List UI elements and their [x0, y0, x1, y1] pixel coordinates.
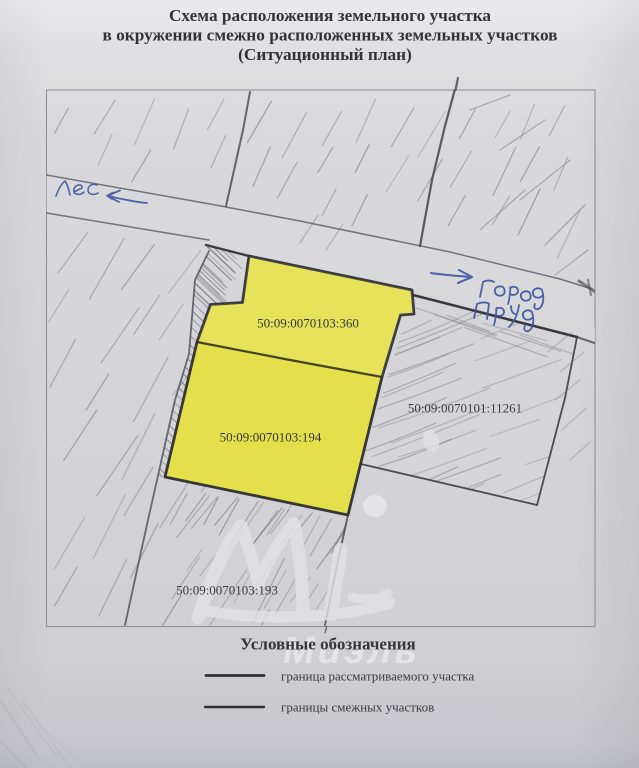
svg-text:50:09:0070101:11261: 50:09:0070101:11261 [408, 401, 522, 416]
svg-text:в окружении смежно расположенн: в окружении смежно расположенных земельн… [102, 26, 557, 45]
svg-text:50:09:0070103:360: 50:09:0070103:360 [257, 316, 359, 331]
svg-text:Условные обозначения: Условные обозначения [240, 635, 416, 654]
svg-text:50:09:0070103:193: 50:09:0070103:193 [176, 583, 278, 598]
svg-text:(Ситуационный план): (Ситуационный план) [238, 45, 412, 64]
svg-text:50:09:0070103:194: 50:09:0070103:194 [220, 430, 322, 445]
svg-text:граница рассматриваемого участ: граница рассматриваемого участка [281, 669, 475, 684]
svg-text:границы смежных участков: границы смежных участков [281, 700, 434, 715]
svg-text:Схема расположения земельного: Схема расположения земельного участка [169, 6, 491, 25]
